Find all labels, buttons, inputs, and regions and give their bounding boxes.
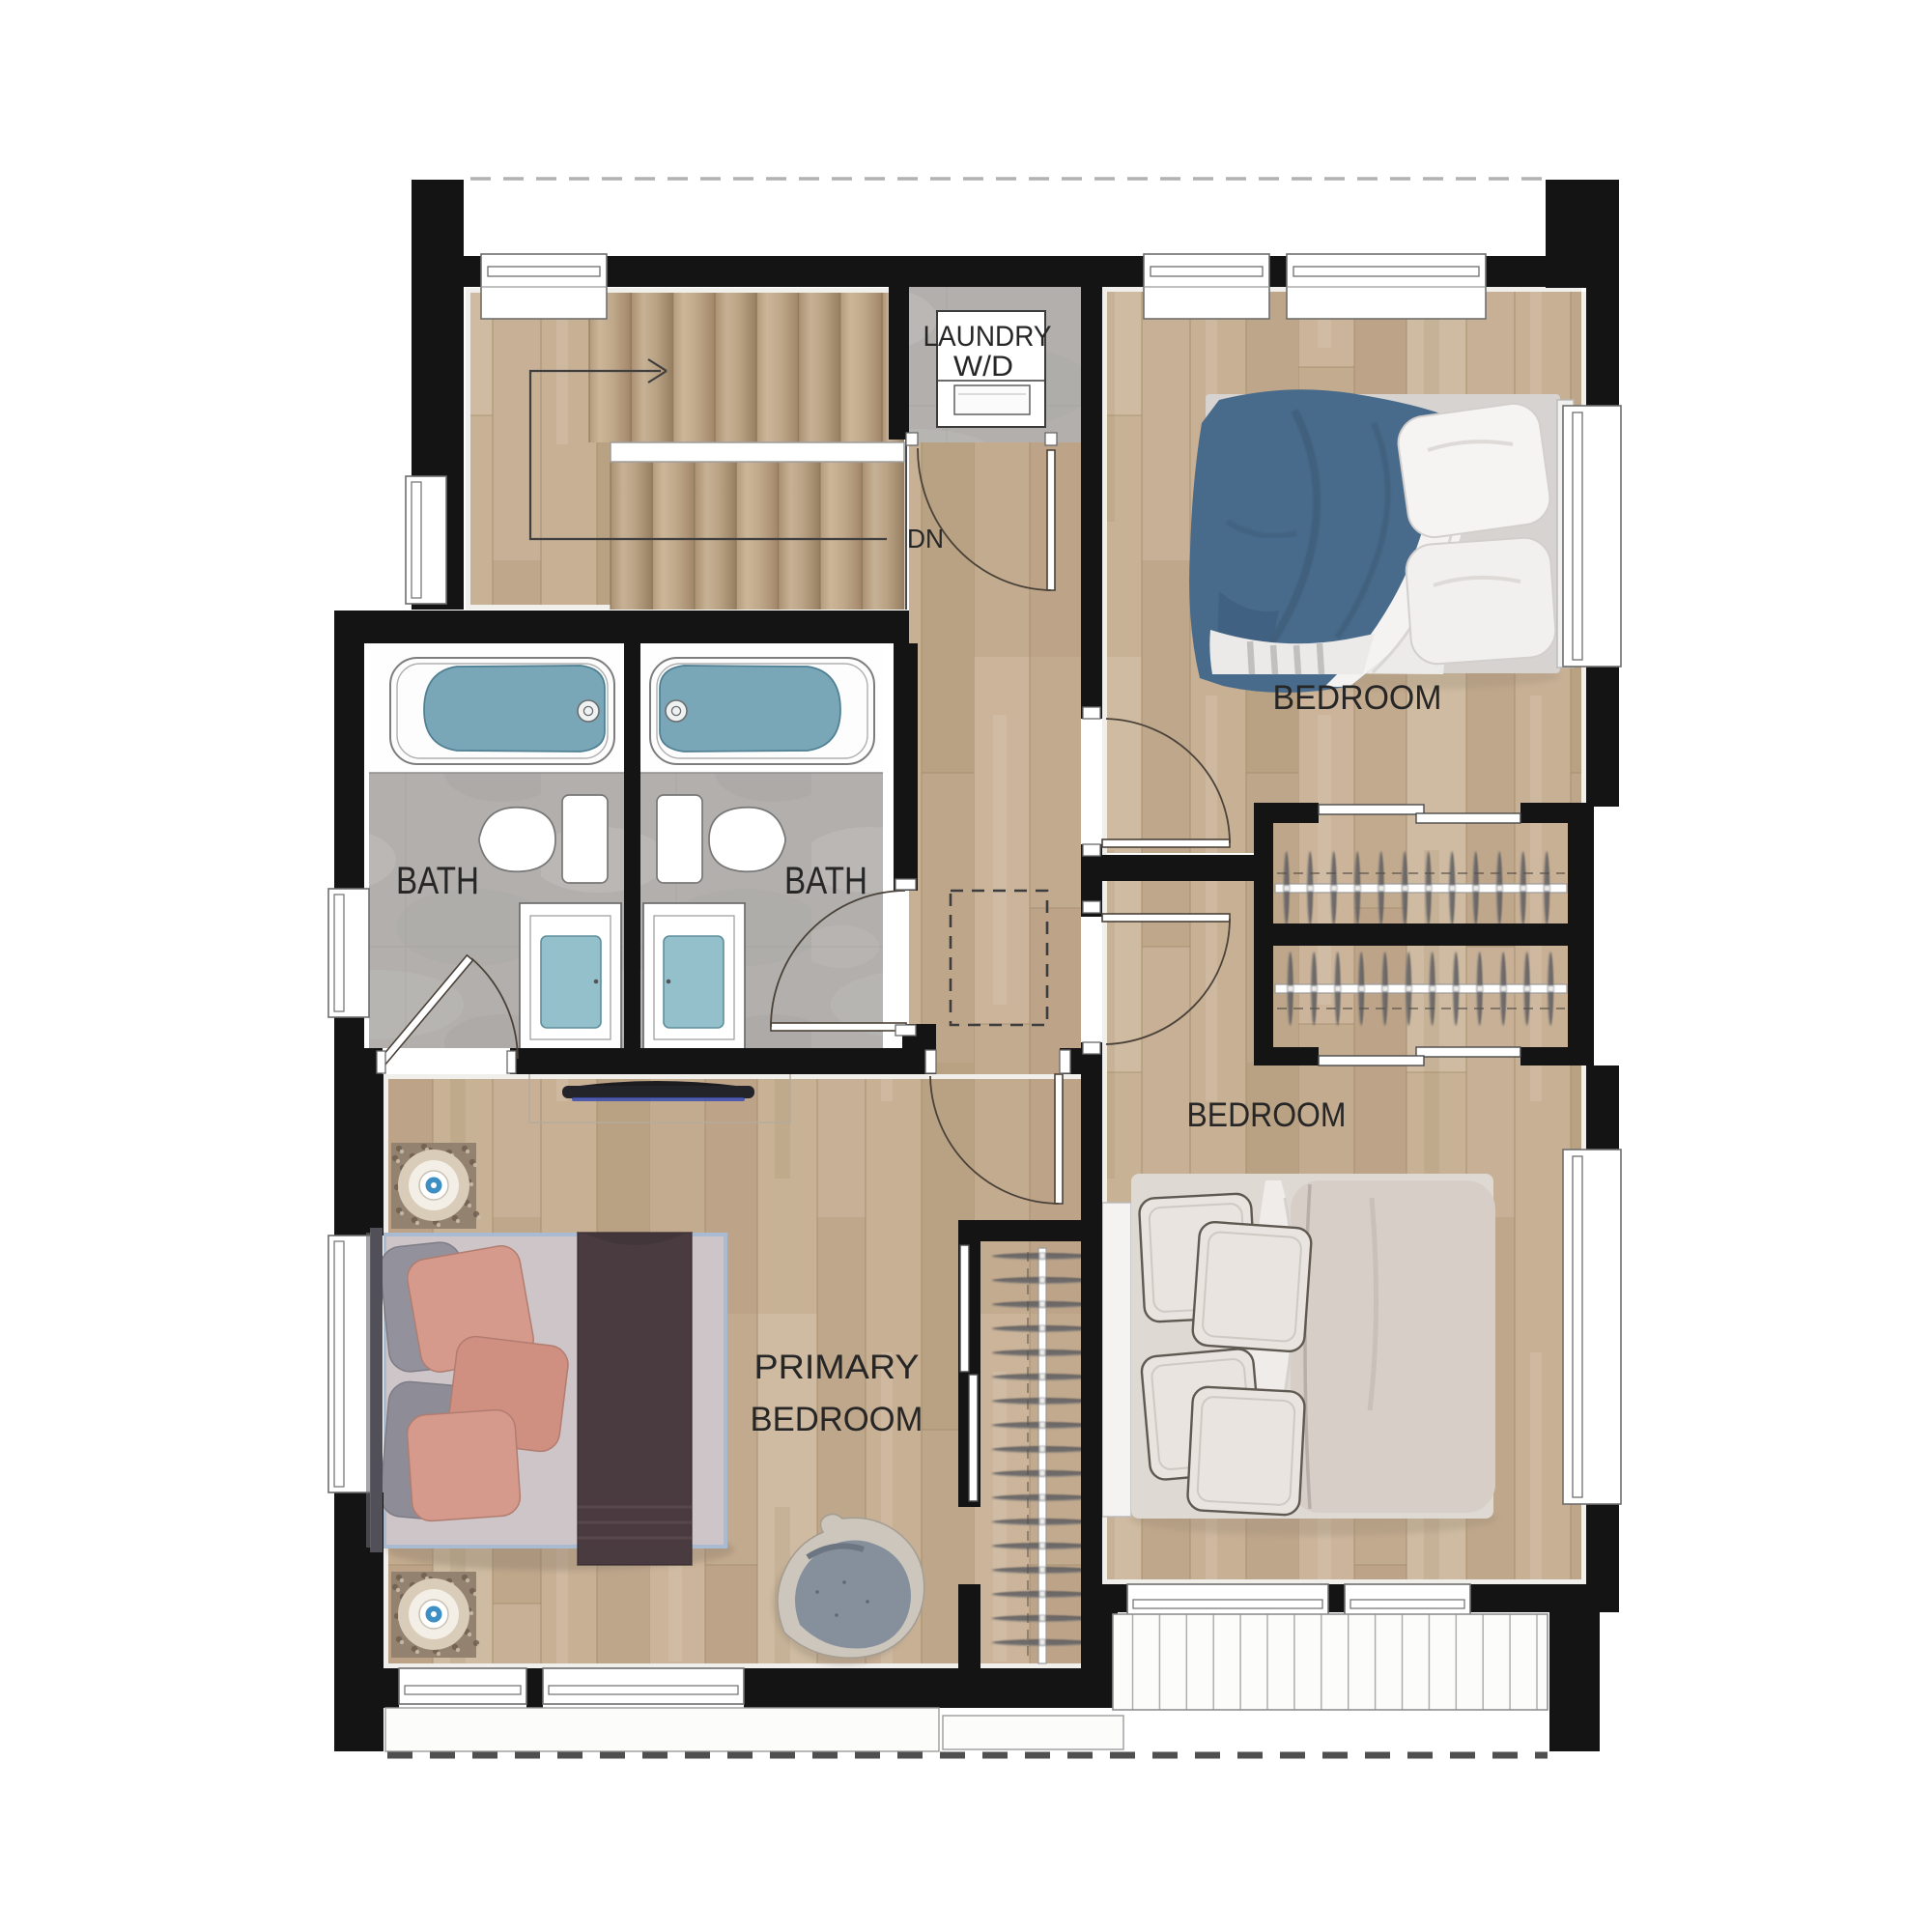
- svg-text:DN: DN: [907, 524, 944, 554]
- svg-text:BEDROOM: BEDROOM: [1187, 1096, 1347, 1134]
- svg-text:W/D: W/D: [953, 351, 1013, 383]
- svg-text:PRIMARY: PRIMARY: [754, 1349, 920, 1386]
- svg-text:BEDROOM: BEDROOM: [1273, 679, 1442, 717]
- svg-text:LAUNDRY: LAUNDRY: [923, 321, 1052, 353]
- svg-text:BEDROOM: BEDROOM: [751, 1401, 923, 1438]
- svg-text:BATH: BATH: [396, 860, 479, 902]
- svg-text:BATH: BATH: [784, 860, 867, 902]
